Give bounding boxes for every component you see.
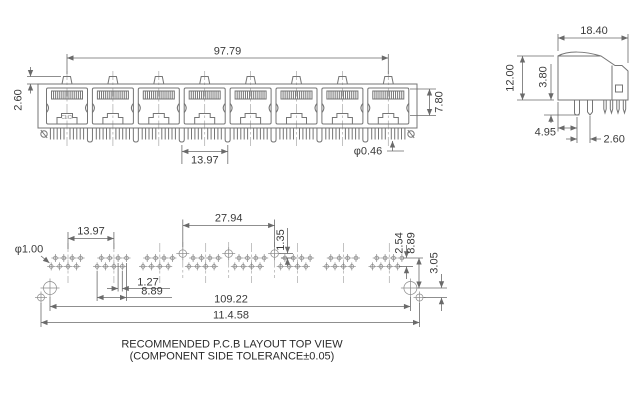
- front-ports-and-pins: [41, 77, 414, 143]
- dim-front-overall-span: 97.79: [67, 46, 388, 75]
- dim-side-peg-to-pin: 2.60: [566, 116, 625, 146]
- rj45-connector-drawing: CLCI 97.79 2.60 7.80 13.97 φ0.46: [0, 0, 642, 415]
- dim-label-mount-span: 109.22: [214, 294, 248, 306]
- center-lines: [67, 71, 389, 283]
- engineering-drawing-page: CLCI 97.79 2.60 7.80 13.97 φ0.46: [0, 0, 642, 415]
- pcb-caption-line2: (COMPONENT SIDE TOLERANCE±0.05): [130, 351, 335, 363]
- dim-front-pitch: 13.97: [182, 145, 228, 167]
- dim-label-row-to-mount: 8.89: [406, 232, 418, 253]
- dim-label-group-span: 8.89: [141, 286, 162, 298]
- dim-label-peg-to-pin: 2.60: [604, 134, 625, 146]
- dim-label-front-height: 7.80: [434, 91, 446, 112]
- side-body: [558, 52, 628, 115]
- dim-label-front-latch: 2.60: [13, 89, 25, 110]
- dim-pcb-pitch: 13.97: [68, 226, 114, 250]
- dim-pcb-mount-span: 109.22: [50, 294, 410, 312]
- dim-label-side-standoff: 3.80: [538, 66, 550, 87]
- dim-front-pin-diameter: φ0.46: [354, 141, 404, 158]
- dim-label-peg-span: 27.94: [215, 213, 243, 225]
- dim-front-latch-height: 2.60: [13, 67, 62, 111]
- pcb-caption-line1: RECOMMENDED P.C.B LAYOUT TOP VIEW: [121, 339, 343, 351]
- dim-label-peg-offset: 1.35: [275, 229, 287, 250]
- front-body-outline: [38, 84, 417, 128]
- dim-label-side-height: 12.00: [505, 64, 517, 92]
- dim-label-front-pitch: 13.97: [191, 155, 219, 167]
- dim-pcb-peg-offset: 1.35: [275, 228, 293, 266]
- dim-label-back-to-peg: 4.95: [535, 127, 556, 139]
- dim-side-depth: 18.40: [558, 25, 628, 63]
- dim-pcb-group-span: 8.89: [97, 263, 172, 301]
- dim-side-back-to-peg: 4.95: [535, 102, 577, 143]
- dim-label-pin-diameter: φ0.46: [354, 146, 383, 158]
- side-view: 18.40 12.00 3.80 4.95 2.60: [505, 25, 629, 146]
- dim-label-pcb-pitch: 13.97: [77, 226, 105, 238]
- dim-label-overall: 11.4.58: [213, 310, 249, 322]
- dim-label-side-depth: 18.40: [580, 25, 608, 37]
- dim-label-row-pitch: 2.54: [394, 232, 406, 253]
- pcb-layout-view: 13.97 27.94 1.35 1.27 8.89: [15, 213, 447, 363]
- dim-label-hole-diameter: φ1.00: [15, 244, 44, 256]
- dim-front-port-height: 7.80: [410, 89, 446, 116]
- dim-pcb-peg-span: 27.94: [183, 213, 275, 248]
- dim-label-front-span: 97.79: [214, 46, 242, 58]
- dim-pcb-row-to-mount: 8.89: [406, 232, 448, 288]
- dim-label-mount-to-aux: 3.05: [429, 252, 441, 273]
- dim-pcb-hole-diameter: φ1.00: [15, 244, 50, 264]
- dim-pcb-mount-to-aux: 3.05: [424, 252, 448, 311]
- port-logo-text: CLCI: [61, 115, 72, 121]
